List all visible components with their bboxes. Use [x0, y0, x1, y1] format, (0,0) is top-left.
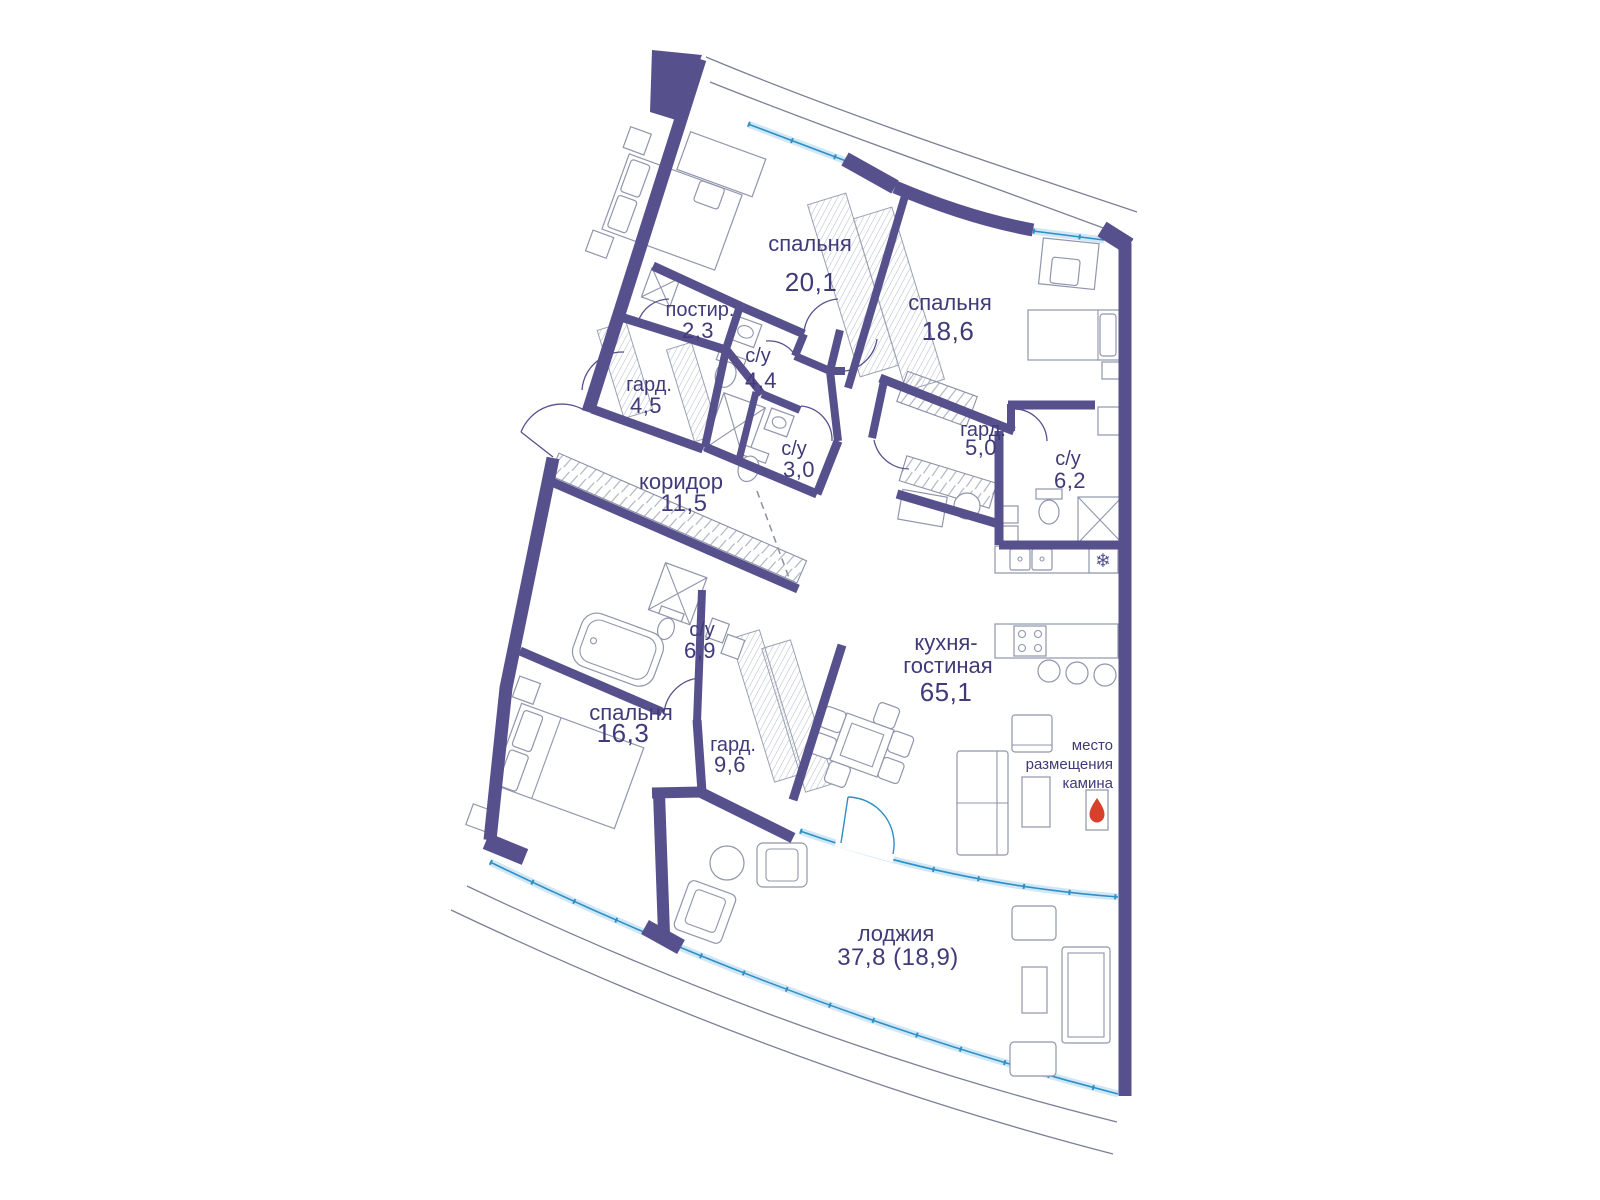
- svg-text:с/у: с/у: [1055, 448, 1081, 470]
- room-label-wardrobe-1: гард. 4,5: [626, 374, 672, 418]
- room-label-wardrobe-3: гард. 9,6: [710, 734, 756, 777]
- svg-text:5,0: 5,0: [965, 435, 997, 460]
- entrance-door-arc: [521, 404, 584, 457]
- room-label-bathroom-3: с/у 6,2: [1054, 448, 1086, 493]
- svg-text:37,8 (18,9): 37,8 (18,9): [837, 944, 959, 971]
- svg-text:лоджия: лоджия: [858, 921, 935, 946]
- svg-text:4,5: 4,5: [630, 393, 662, 418]
- svg-text:гостиная: гостиная: [903, 653, 992, 678]
- furniture-bathroom-4: [568, 543, 761, 716]
- svg-text:спальня: спальня: [908, 290, 992, 315]
- room-label-bathroom-4: с/у 6,9: [684, 619, 716, 663]
- svg-text:65,1: 65,1: [920, 677, 973, 707]
- svg-text:9,6: 9,6: [714, 752, 746, 777]
- room-label-kitchen-living: кухня- гостиная 65,1: [903, 630, 992, 707]
- svg-text:6,9: 6,9: [684, 638, 716, 663]
- fireplace-spot: [1086, 790, 1108, 830]
- snowflake-icon: ❄: [1095, 551, 1111, 572]
- svg-text:с/у: с/у: [745, 345, 771, 367]
- svg-text:место: место: [1072, 737, 1113, 754]
- room-label-loggia: лоджия 37,8 (18,9): [837, 921, 959, 971]
- svg-text:4,4: 4,4: [745, 368, 777, 393]
- svg-text:3,0: 3,0: [783, 457, 815, 482]
- svg-text:16,3: 16,3: [597, 718, 650, 748]
- svg-text:11,5: 11,5: [661, 490, 708, 517]
- svg-text:6,2: 6,2: [1054, 468, 1086, 493]
- room-label-bedroom-2: спальня 18,6: [908, 290, 992, 346]
- svg-text:2,3: 2,3: [682, 318, 714, 343]
- room-label-bedroom-3: спальня 16,3: [589, 700, 673, 748]
- svg-text:18,6: 18,6: [922, 316, 975, 346]
- room-label-bathroom-1: с/у 4,4: [745, 345, 777, 393]
- floor-plan-page: ❄: [0, 0, 1600, 1200]
- svg-text:20,1: 20,1: [785, 267, 838, 297]
- furniture-bedroom-2: [1028, 238, 1122, 379]
- svg-text:камина: камина: [1062, 775, 1113, 792]
- svg-text:размещения: размещения: [1026, 756, 1113, 773]
- room-label-bathroom-2: с/у 3,0: [781, 438, 815, 482]
- floor-plan-svg: ❄: [0, 0, 1600, 1200]
- furniture-kitchen: ❄: [995, 546, 1118, 686]
- svg-text:кухня-: кухня-: [914, 630, 977, 655]
- window-bedroom-1: [748, 124, 846, 161]
- svg-text:спальня: спальня: [768, 231, 852, 256]
